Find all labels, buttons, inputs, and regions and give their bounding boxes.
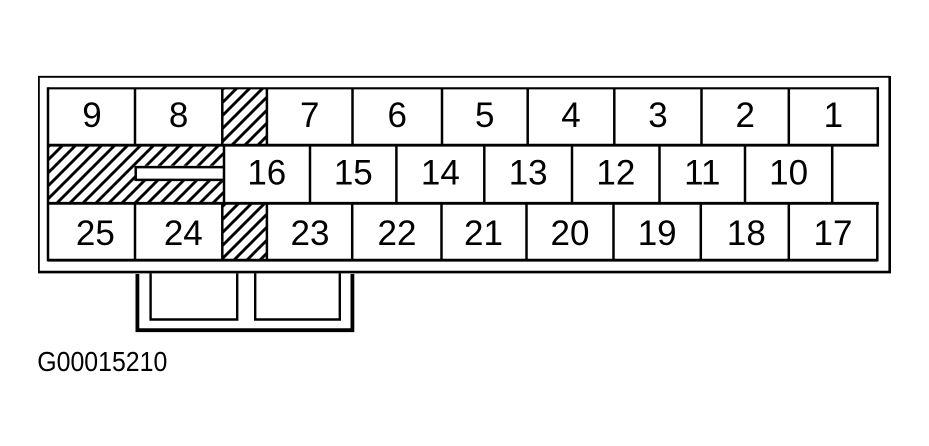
svg-text:7: 7: [300, 96, 319, 135]
svg-text:18: 18: [727, 214, 766, 253]
svg-text:G00015210: G00015210: [37, 346, 167, 377]
svg-text:11: 11: [684, 153, 720, 192]
svg-text:8: 8: [169, 96, 188, 135]
svg-text:25: 25: [76, 214, 115, 253]
svg-text:21: 21: [464, 214, 503, 253]
svg-text:19: 19: [638, 214, 677, 253]
svg-text:3: 3: [648, 96, 667, 135]
svg-text:15: 15: [334, 153, 373, 192]
svg-text:2: 2: [735, 96, 754, 135]
svg-text:12: 12: [596, 153, 635, 192]
svg-text:24: 24: [164, 214, 203, 253]
svg-text:5: 5: [475, 96, 494, 135]
svg-text:23: 23: [291, 214, 330, 253]
svg-text:10: 10: [769, 153, 808, 192]
svg-text:16: 16: [247, 153, 286, 192]
svg-text:22: 22: [378, 214, 417, 253]
svg-text:9: 9: [82, 96, 101, 135]
svg-text:20: 20: [551, 214, 590, 253]
svg-text:4: 4: [561, 96, 580, 135]
svg-text:6: 6: [387, 96, 406, 135]
svg-text:14: 14: [421, 153, 460, 192]
svg-text:13: 13: [509, 153, 548, 192]
svg-text:17: 17: [814, 214, 853, 253]
svg-text:1: 1: [824, 96, 843, 135]
